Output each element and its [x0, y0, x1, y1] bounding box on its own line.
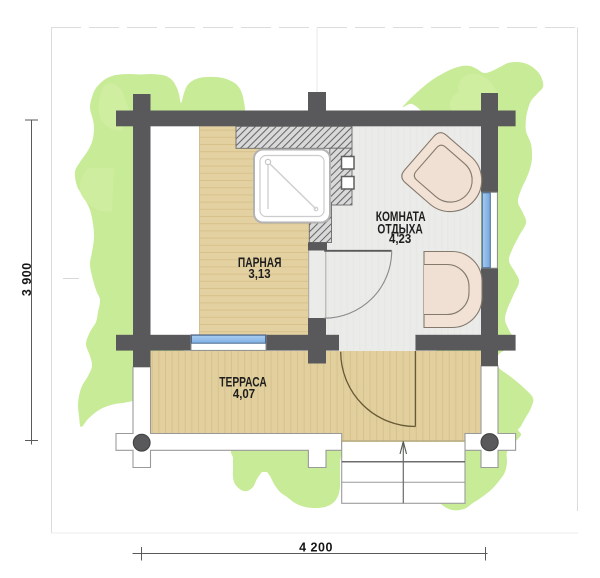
svg-text:4,23: 4,23	[389, 232, 411, 247]
svg-text:4 200: 4 200	[299, 541, 333, 555]
svg-text:4,07: 4,07	[233, 386, 255, 401]
svg-text:3,13: 3,13	[248, 266, 270, 281]
svg-text:3 900: 3 900	[20, 262, 34, 296]
